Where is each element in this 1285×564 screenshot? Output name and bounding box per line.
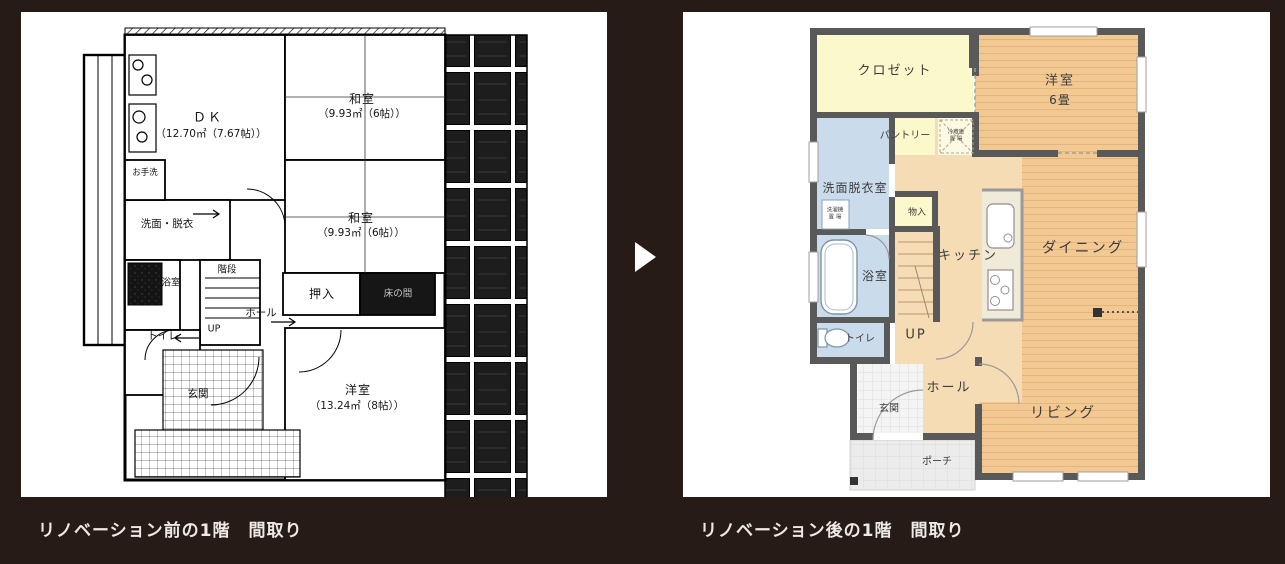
before-floorplan-drawing: [21, 12, 607, 497]
stairs-up-label: UP: [905, 329, 926, 344]
washer-space-label: 洗濯機置 場: [827, 207, 844, 220]
stairs-up-label: UP: [208, 325, 221, 336]
room-label-toilet: トイレ: [147, 330, 179, 342]
room-size-washitsu-2: （9.93㎡（6帖））: [317, 227, 405, 239]
bathtub-icon: [821, 240, 857, 314]
room-label-yoshitsu: 洋室: [1045, 75, 1075, 90]
room-label-closet: クロゼット: [857, 65, 932, 80]
balcony-left: [84, 55, 125, 345]
porch-grid: [135, 430, 300, 477]
room-label-porch: ポーチ: [922, 456, 952, 468]
room-size-yoshitsu: （13.24㎡（8帖））: [310, 400, 405, 412]
room-label-senmen: 洗面脱衣室: [822, 182, 887, 196]
arrow-right-icon: [635, 242, 656, 272]
room-label-toilet: トイレ: [845, 333, 875, 345]
room-label-pantry: パントリー: [880, 130, 931, 142]
room-label-mononyu: 物入: [908, 208, 926, 218]
room-size-yoshitsu: 6畳: [1049, 94, 1071, 108]
room-label-tokonoma: 床の間: [384, 290, 413, 301]
room-label-washitsu-2: 和室: [348, 212, 374, 226]
fridge-space-label-line2: 置 場: [948, 136, 965, 143]
room-size-dk: （12.70㎡（7.67帖））: [155, 128, 266, 140]
washer-space-label-line1: 洗濯機: [827, 207, 844, 214]
room-label-genkan: 玄関: [188, 388, 209, 400]
room-label-senmen: 洗面・脱衣: [141, 218, 194, 230]
room-label-stairs: 階段: [217, 266, 236, 277]
room-label-otearai: お手洗: [132, 169, 158, 179]
room-label-bath: 浴室: [862, 270, 888, 284]
veranda-tiles-right: [445, 35, 527, 497]
room-label-yoshitsu: 洋室: [345, 384, 371, 398]
before-caption: リノベーション前の1階 間取り: [38, 516, 303, 541]
room-size-washitsu-1: （9.93㎡（6帖））: [318, 108, 406, 120]
bathroom-tile-fill: [128, 263, 162, 305]
room-label-genkan: 玄関: [879, 403, 899, 415]
before-floorplan-panel: ＤＫ （12.70㎡（7.67帖）） 和室 （9.93㎡（6帖）） 和室 （9.…: [21, 12, 607, 497]
kitchen-fixtures: [129, 55, 156, 152]
room-label-oshiire: 押入: [309, 288, 335, 302]
room-label-hall: ホール: [926, 382, 971, 397]
room-label-bath: 浴室: [161, 279, 180, 290]
room-label-dining: ダイニング: [1042, 241, 1125, 258]
fridge-space-label: 冷蔵庫置 場: [948, 129, 965, 142]
after-caption: リノベーション後の1階 間取り: [700, 516, 965, 541]
room-label-hall: ホール: [245, 307, 277, 319]
page-background: ＤＫ （12.70㎡（7.67帖）） 和室 （9.93㎡（6帖）） 和室 （9.…: [0, 0, 1285, 564]
after-floorplan-panel: クロゼット 洋室 6畳 パントリー 冷蔵庫置 場 洗面脱衣室 洗濯機置 場 物入…: [683, 12, 1270, 497]
entrance-grid: [163, 350, 263, 430]
washer-space-label-line2: 置 場: [827, 214, 844, 221]
room-label-washitsu-1: 和室: [349, 93, 375, 107]
room-label-dk: ＤＫ: [193, 112, 223, 127]
fridge-space-label-line1: 冷蔵庫: [948, 129, 965, 136]
room-label-living: リビング: [1030, 406, 1096, 423]
room-label-kitchen: キッチン: [938, 250, 998, 265]
